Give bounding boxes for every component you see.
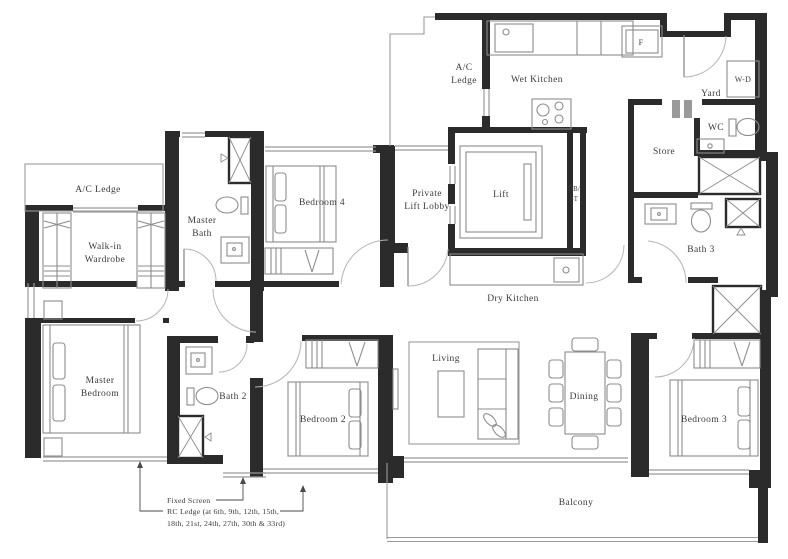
rc-ledge-note-line2: 18th, 21st, 24th, 27th, 30th & 33rd): [167, 519, 285, 528]
room-label-store: Store: [653, 147, 675, 157]
bath3-ac-shaft: [726, 199, 760, 235]
fridge-label: F: [639, 38, 644, 47]
room-label-private-lift-lobby: PrivateLift Lobby: [404, 189, 449, 212]
room-label-dining: Dining: [570, 392, 599, 402]
dry-kitchen-counter: [450, 254, 583, 285]
room-label-master-bath: MasterBath: [188, 216, 217, 239]
coffee-table: [438, 371, 464, 417]
room-label-living: Living: [432, 354, 460, 364]
room-label-bath2: Bath 2: [219, 392, 246, 402]
fixed-screen-note: Fixed Screen: [167, 496, 210, 505]
room-label-walk-in-wardrobe: Walk-inWardrobe: [85, 242, 125, 265]
bath2-sink: [186, 347, 212, 374]
sofa: [478, 349, 518, 439]
wc-toilet: [729, 119, 759, 137]
bath3-sink: [645, 204, 676, 224]
bedroom2-wardrobe: [306, 340, 378, 368]
master-bath-shaft: [221, 137, 251, 183]
hob: [532, 99, 571, 129]
room-label-bedroom2: Bedroom 2: [300, 415, 346, 425]
room-label-bath3: Bath 3: [687, 245, 714, 255]
annotation-text: Fixed Screen RC Ledge (at 6th, 9th, 12th…: [167, 496, 285, 528]
store-sliding-door: [672, 100, 692, 118]
bath2-shower: [178, 416, 211, 458]
bedroom3-ac-ledge-shaft: [713, 286, 761, 334]
master-bath-toilet: [216, 197, 248, 214]
room-label-balcony: Balcony: [559, 498, 593, 508]
room-label-bedroom4: Bedroom 4: [299, 198, 345, 208]
floor-plan-drawing: A/CLedge Wet Kitchen F Yard W-D WC Store…: [0, 0, 788, 559]
bedroom3-wardrobe: [694, 340, 760, 368]
floor-plan-page: A/CLedge Wet Kitchen F Yard W-D WC Store…: [0, 0, 788, 559]
bath3-toilet: [691, 203, 712, 232]
room-label-wet-kitchen: Wet Kitchen: [511, 75, 563, 85]
bath2-toilet: [187, 388, 218, 406]
room-label-yard: Yard: [701, 89, 721, 99]
room-label-bedroom3: Bedroom 3: [681, 415, 727, 425]
washer-dryer-label: W-D: [735, 75, 751, 84]
room-label-master-bedroom: MasterBedroom: [81, 376, 119, 399]
rc-ledge-note-line1: RC Ledge (at 6th, 9th, 12th, 15th,: [167, 507, 279, 516]
tv-console: [393, 369, 398, 409]
ac-ledge-top-outline: [390, 17, 435, 146]
room-label-lift: Lift: [493, 189, 509, 200]
room-label-wc: WC: [708, 123, 724, 133]
walls: [25, 13, 778, 543]
master-bath-sink: [221, 237, 249, 263]
bedroom4-wardrobe: [265, 248, 333, 274]
bath3-shower: [699, 157, 760, 194]
wet-kitchen-counter: [487, 21, 633, 55]
room-label-dry-kitchen: Dry Kitchen: [487, 294, 539, 304]
room-label-ac-ledge-top: A/CLedge: [451, 63, 477, 86]
room-label-ac-ledge-left: A/C Ledge: [75, 185, 121, 195]
